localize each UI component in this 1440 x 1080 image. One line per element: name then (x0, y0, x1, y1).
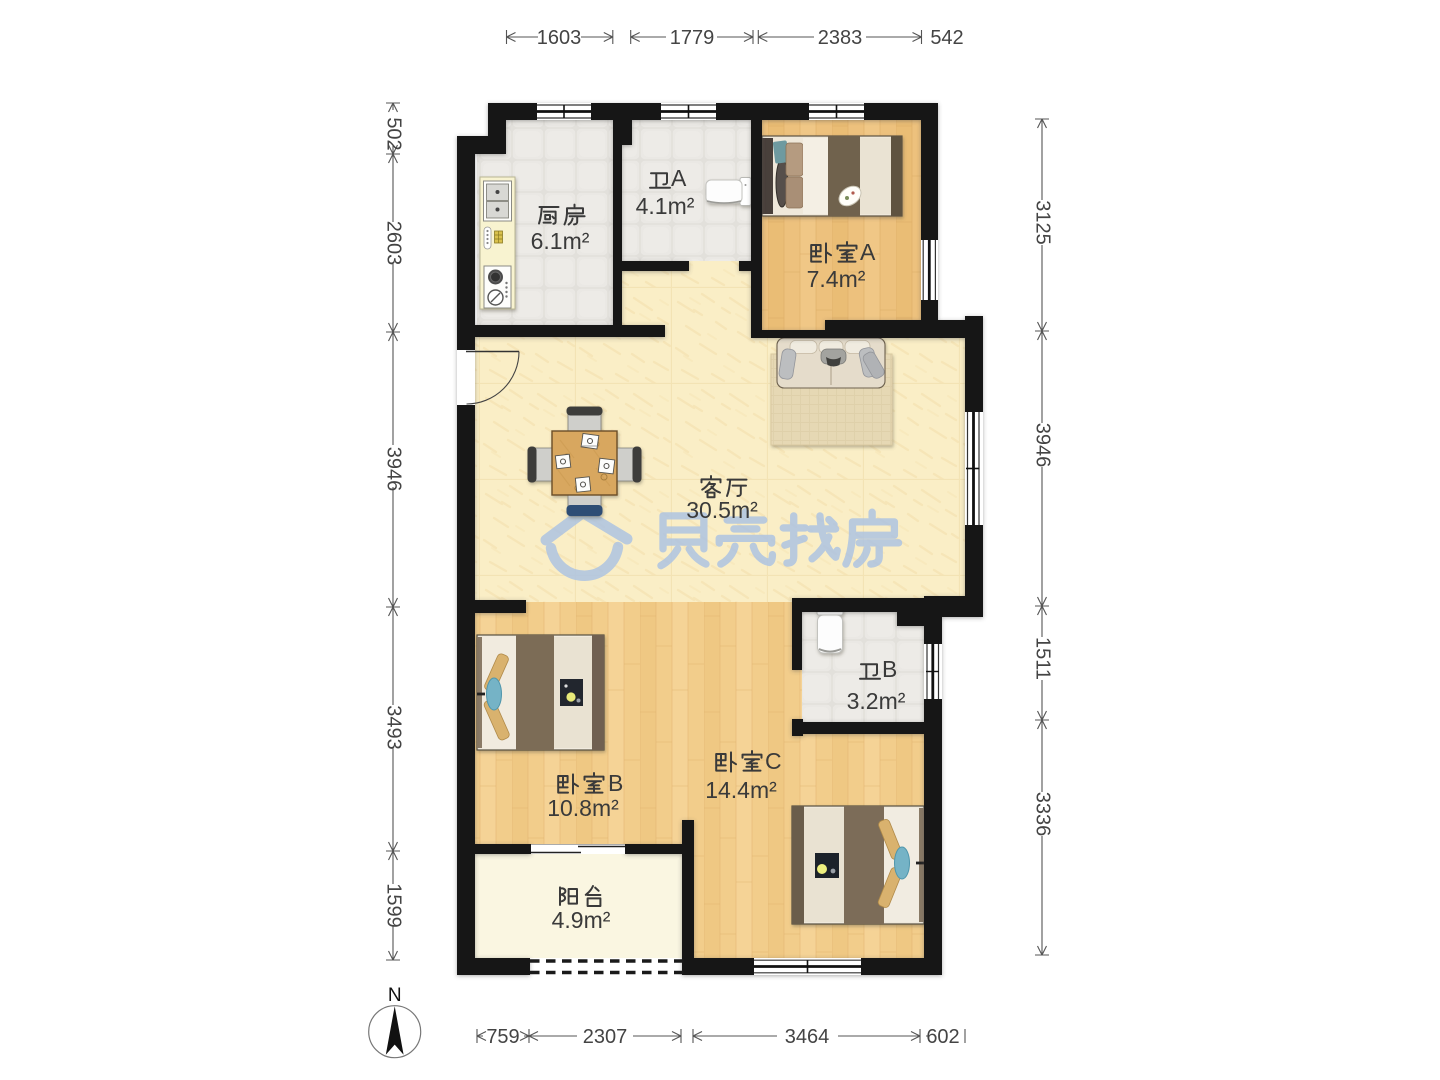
svg-text:2383: 2383 (818, 27, 863, 49)
svg-text:3946: 3946 (1032, 423, 1054, 468)
svg-text:B: B (882, 656, 897, 682)
svg-text:3464: 3464 (785, 1026, 830, 1048)
svg-text:502: 502 (383, 117, 405, 150)
svg-text:1603: 1603 (537, 27, 582, 49)
svg-text:N: N (388, 985, 402, 1006)
svg-text:3125: 3125 (1032, 200, 1054, 245)
svg-text:542: 542 (930, 27, 963, 49)
svg-text:C: C (765, 748, 782, 774)
svg-text:4.9m²: 4.9m² (552, 907, 611, 933)
svg-text:A: A (671, 165, 687, 191)
svg-text:10.8m²: 10.8m² (547, 795, 619, 821)
svg-text:2307: 2307 (583, 1026, 628, 1048)
svg-text:2603: 2603 (383, 221, 405, 266)
svg-text:602: 602 (926, 1026, 959, 1048)
svg-text:A: A (860, 239, 876, 265)
svg-text:4.1m²: 4.1m² (636, 193, 695, 219)
svg-text:1779: 1779 (670, 27, 715, 49)
svg-text:759: 759 (486, 1026, 519, 1048)
svg-text:6.1m²: 6.1m² (531, 228, 590, 254)
svg-text:3493: 3493 (383, 705, 405, 750)
svg-text:1511: 1511 (1032, 637, 1054, 680)
svg-text:14.4m²: 14.4m² (705, 777, 777, 803)
svg-text:7.4m²: 7.4m² (807, 266, 866, 292)
svg-text:3946: 3946 (383, 447, 405, 492)
svg-text:3336: 3336 (1032, 792, 1054, 837)
svg-text:B: B (608, 770, 623, 796)
svg-text:3.2m²: 3.2m² (847, 688, 906, 714)
svg-text:30.5m²: 30.5m² (686, 497, 758, 523)
svg-text:1599: 1599 (383, 883, 405, 928)
